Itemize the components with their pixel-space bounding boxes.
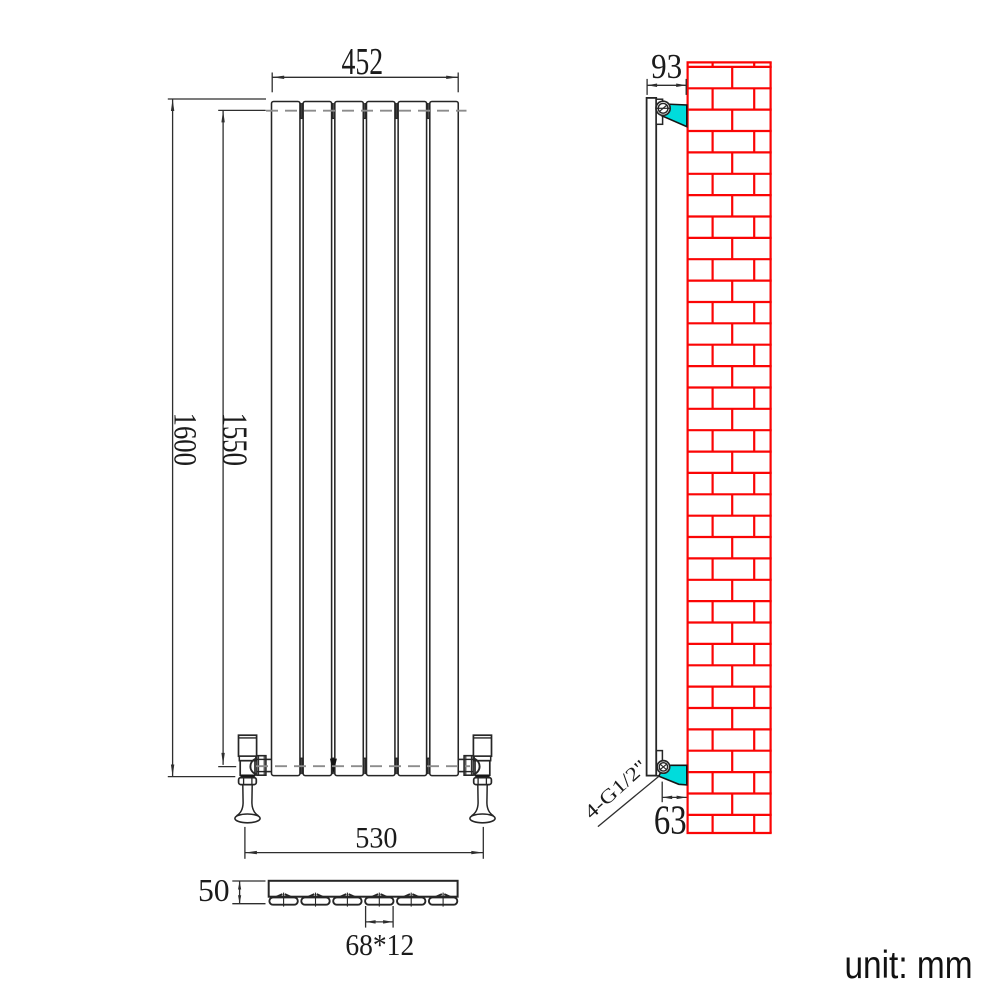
svg-text:1600: 1600: [167, 413, 203, 466]
svg-text:68*12: 68*12: [345, 929, 414, 963]
svg-text:1550: 1550: [215, 413, 255, 466]
svg-text:50: 50: [198, 873, 230, 908]
svg-text:530: 530: [355, 822, 397, 855]
svg-text:unit: mm: unit: mm: [844, 943, 972, 987]
svg-text:93: 93: [651, 49, 682, 87]
svg-text:452: 452: [341, 41, 383, 83]
svg-text:63: 63: [654, 798, 687, 843]
